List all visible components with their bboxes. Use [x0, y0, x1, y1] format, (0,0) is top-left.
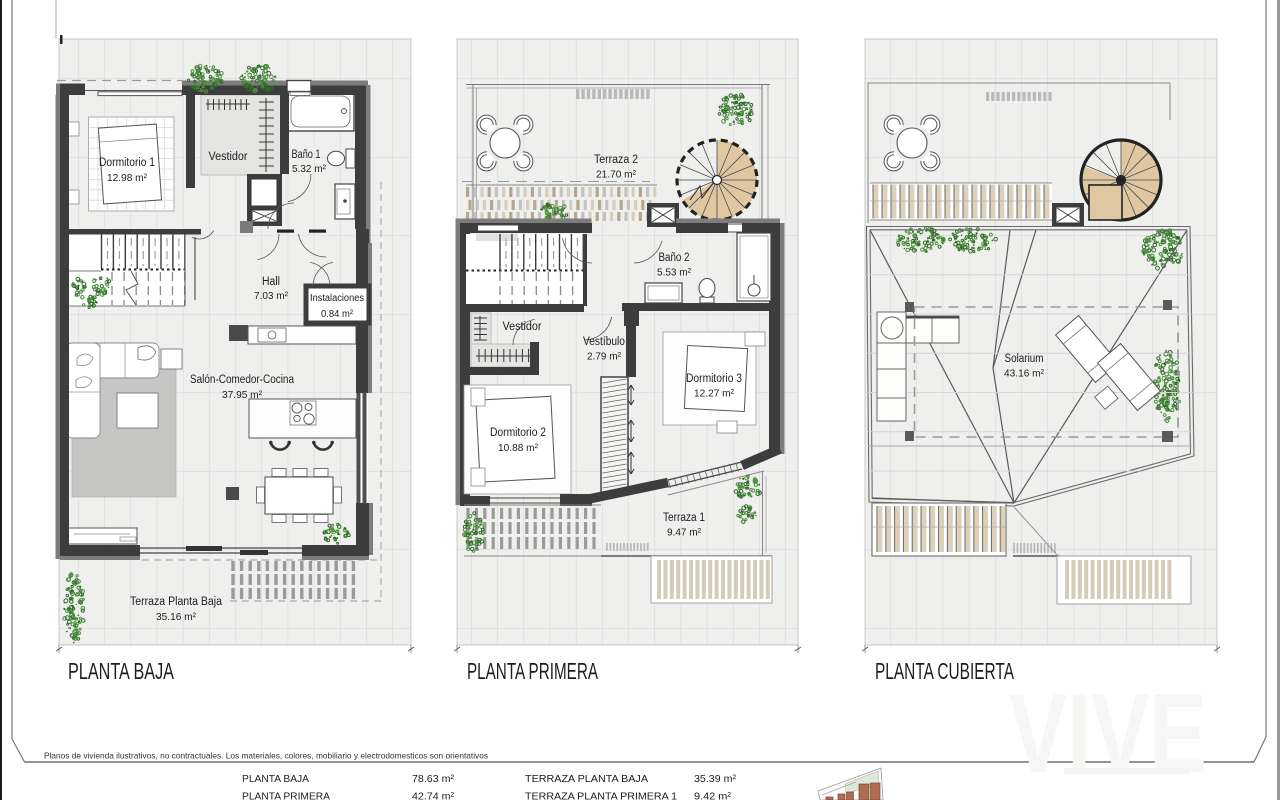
svg-text:42.74 m²: 42.74 m²: [412, 791, 455, 800]
svg-text:Terraza Planta Baja: Terraza Planta Baja: [130, 596, 223, 608]
svg-text:PLANTA BAJA: PLANTA BAJA: [242, 773, 309, 785]
svg-text:9.47 m²: 9.47 m²: [667, 527, 701, 539]
svg-text:Terraza 1: Terraza 1: [663, 512, 705, 524]
svg-text:Baño 1: Baño 1: [292, 149, 321, 161]
svg-text:Dormitorio 2: Dormitorio 2: [490, 427, 546, 439]
svg-text:9.42 m²: 9.42 m²: [694, 791, 732, 800]
svg-text:5.53 m²: 5.53 m²: [657, 267, 691, 279]
svg-text:12.98 m²: 12.98 m²: [107, 172, 147, 184]
svg-text:21.70 m²: 21.70 m²: [596, 169, 636, 181]
svg-text:VIVE: VIVE: [1009, 671, 1207, 796]
svg-text:TERRAZA PLANTA BAJA: TERRAZA PLANTA BAJA: [525, 773, 648, 785]
svg-text:Salón-Comedor-Cocina: Salón-Comedor-Cocina: [190, 374, 295, 386]
svg-text:0.84 m²: 0.84 m²: [321, 309, 354, 320]
svg-text:5.32 m²: 5.32 m²: [292, 163, 326, 175]
svg-text:Dormitorio 3: Dormitorio 3: [686, 373, 742, 385]
svg-text:PLANTA PRIMERA: PLANTA PRIMERA: [242, 791, 330, 800]
svg-text:Vestidor: Vestidor: [503, 321, 542, 333]
svg-text:78.63 m²: 78.63 m²: [412, 773, 455, 785]
svg-text:2.79 m²: 2.79 m²: [587, 351, 621, 363]
svg-text:TERRAZA PLANTA PRIMERA 1: TERRAZA PLANTA PRIMERA 1: [525, 791, 677, 800]
svg-text:35.16 m²: 35.16 m²: [156, 611, 196, 623]
svg-text:PLANTA CUBIERTA: PLANTA CUBIERTA: [875, 658, 1014, 684]
svg-text:PLANTA BAJA: PLANTA BAJA: [68, 658, 174, 684]
svg-text:10.88 m²: 10.88 m²: [498, 442, 538, 454]
svg-text:Planos de vivienda ilustrativo: Planos de vivienda ilustrativos, no cont…: [44, 751, 488, 761]
svg-text:Dormitorio 1: Dormitorio 1: [99, 157, 155, 169]
svg-text:37.95 m²: 37.95 m²: [222, 389, 262, 401]
svg-text:43.16 m²: 43.16 m²: [1004, 368, 1044, 380]
svg-text:Instalaciones: Instalaciones: [310, 293, 364, 304]
svg-text:Baño 2: Baño 2: [659, 252, 690, 264]
svg-text:Solarium: Solarium: [1005, 353, 1044, 365]
svg-text:35.39 m²: 35.39 m²: [694, 773, 737, 785]
svg-text:Terraza 2: Terraza 2: [594, 154, 638, 166]
svg-text:PLANTA PRIMERA: PLANTA PRIMERA: [467, 658, 598, 684]
svg-text:Vestidor: Vestidor: [209, 151, 248, 163]
svg-text:12.27 m²: 12.27 m²: [694, 388, 734, 400]
svg-text:Vestíbulo: Vestíbulo: [583, 336, 625, 348]
svg-text:7.03 m²: 7.03 m²: [254, 290, 288, 302]
svg-text:Hall: Hall: [262, 276, 280, 288]
